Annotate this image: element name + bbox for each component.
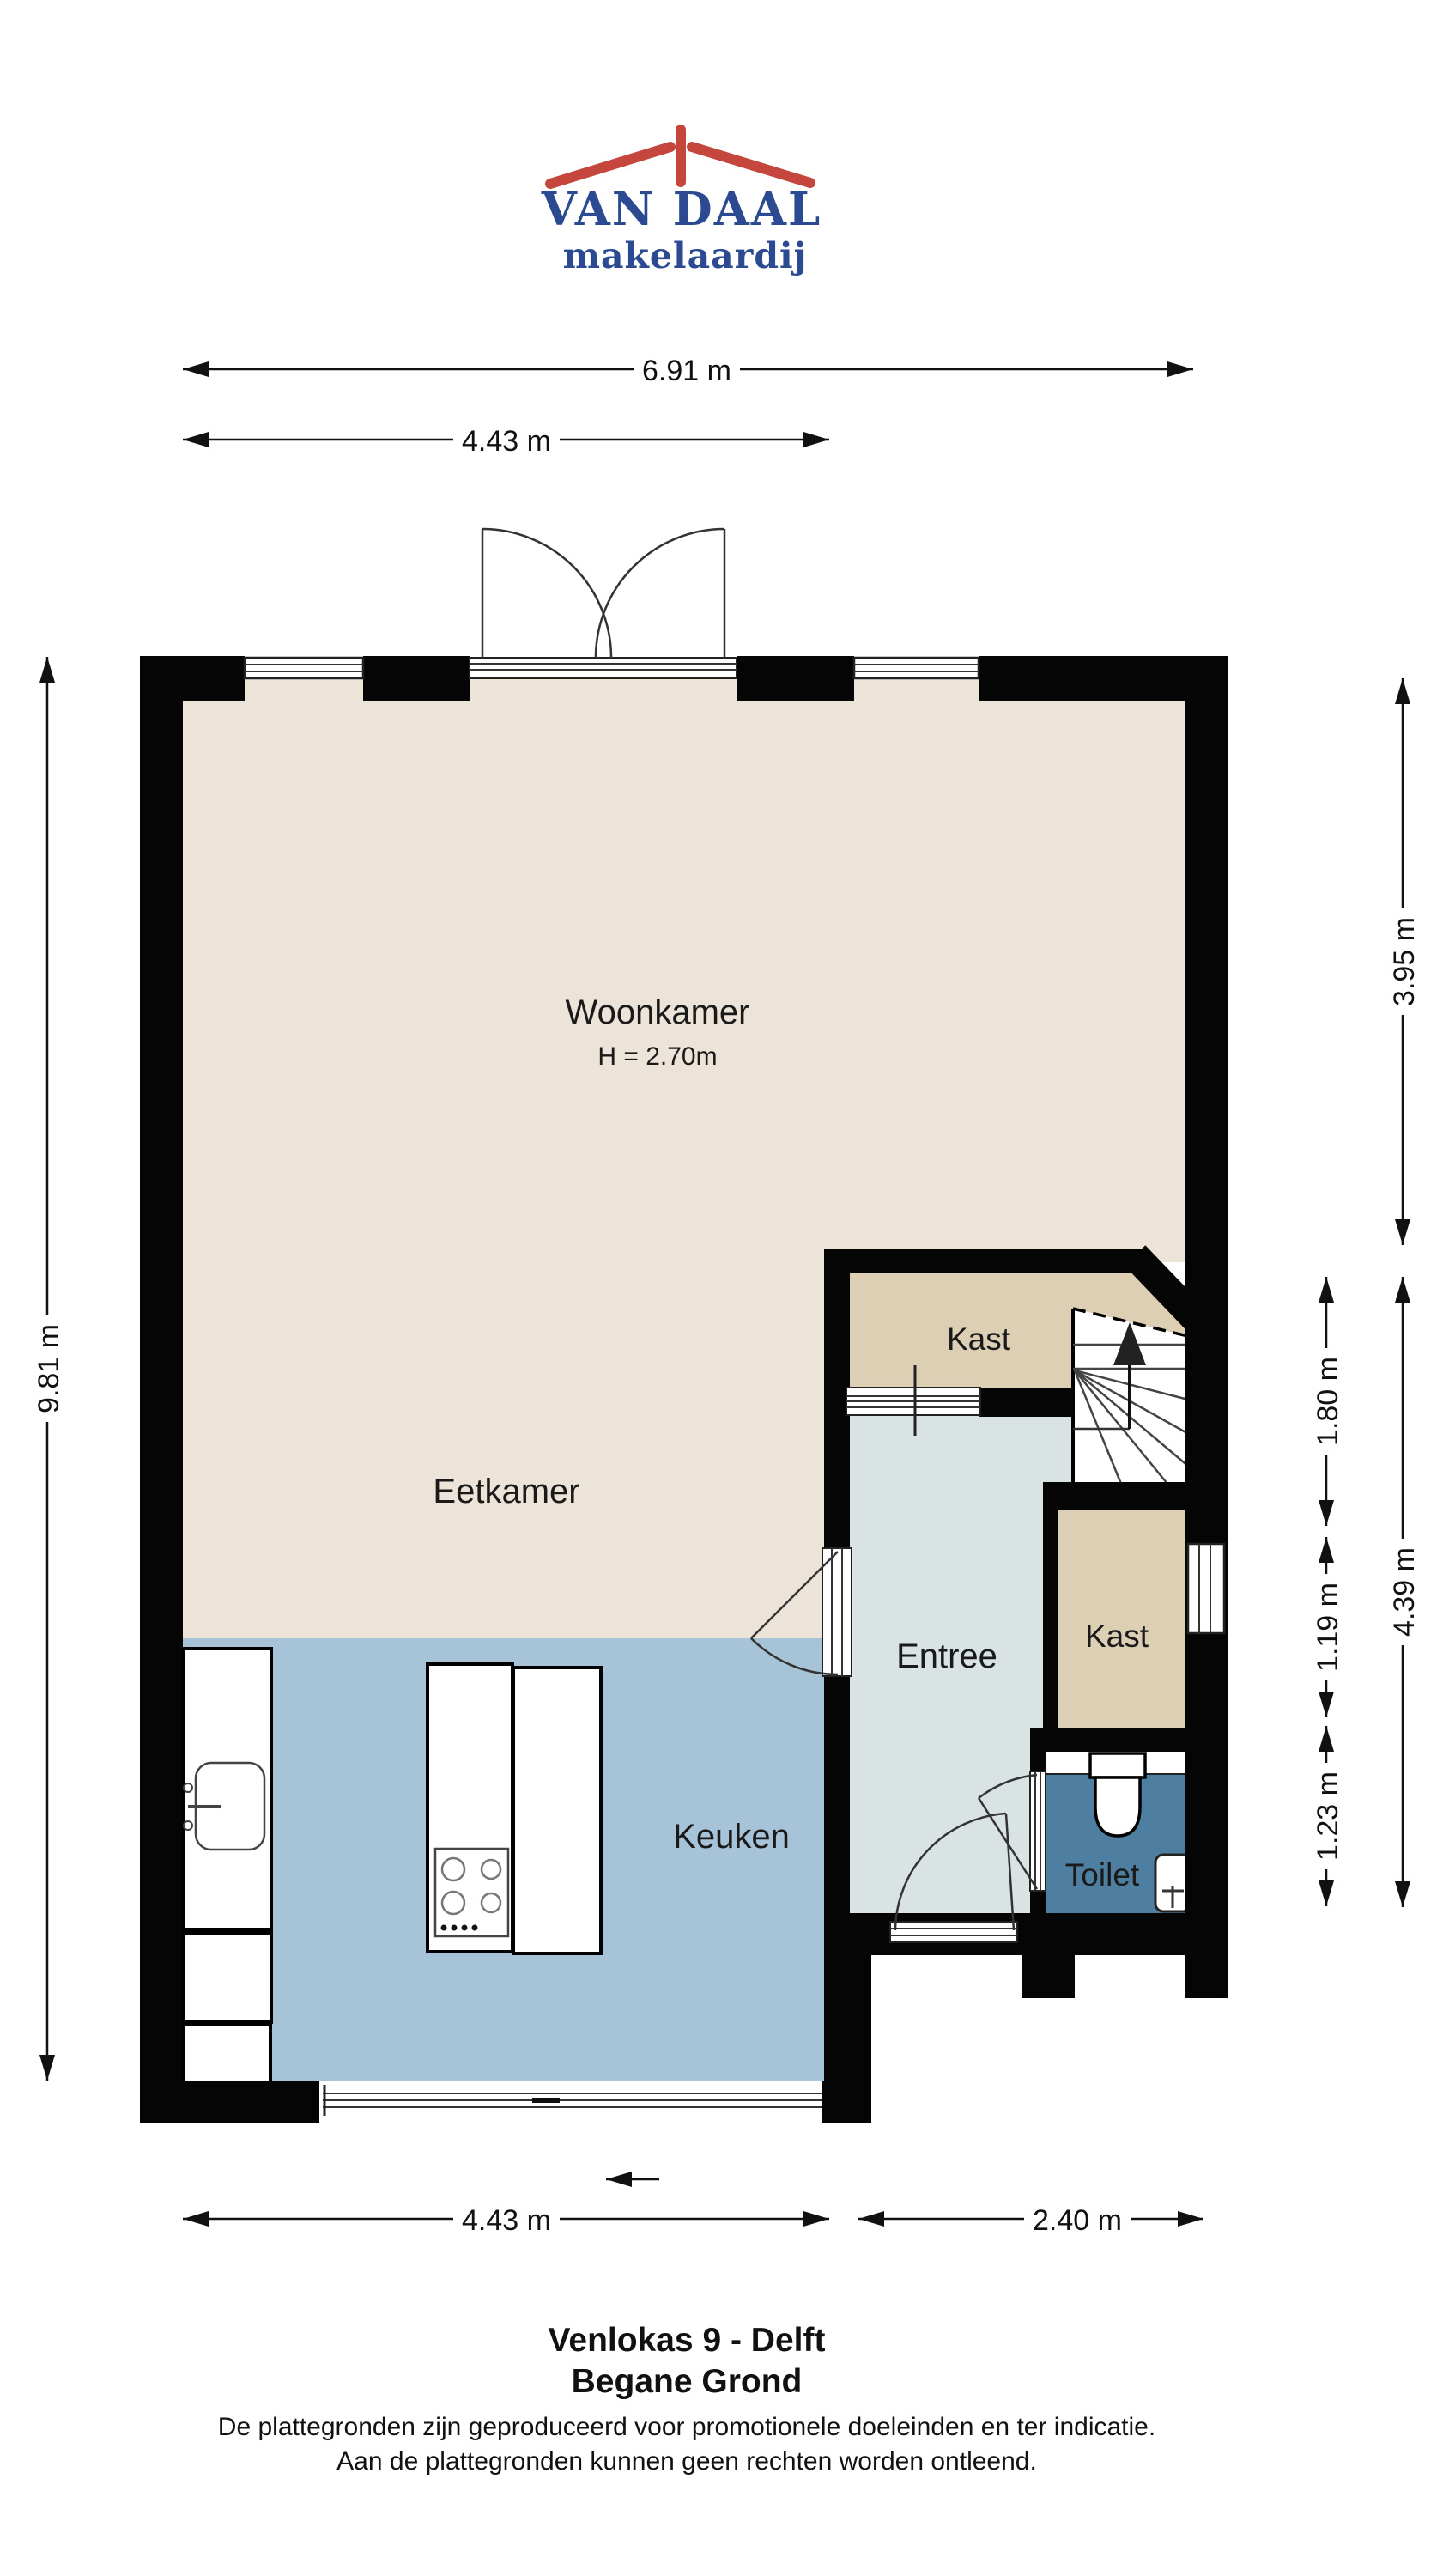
- sliding-door-keuken: [319, 2081, 822, 2179]
- svg-text:3.95 m: 3.95 m: [1388, 917, 1421, 1006]
- double-door-top: [470, 529, 737, 678]
- agency-logo: VAN DAAL makelaardij: [541, 130, 822, 276]
- svg-text:1.19 m: 1.19 m: [1312, 1583, 1344, 1672]
- svg-text:9.81 m: 9.81 m: [33, 1324, 65, 1413]
- plan-subtitle: Begane Grond: [572, 2363, 803, 2400]
- counter-unit-mid: [183, 1933, 271, 2022]
- floorplan-page: VAN DAAL makelaardij: [0, 0, 1449, 2576]
- dim-bottom-left: 4.43 m: [183, 2200, 829, 2238]
- disclaimer-line2: Aan de plattegronden kunnen geen rechten…: [336, 2447, 1037, 2476]
- dim-right-inner-bottom: 1.23 m: [1307, 1726, 1345, 1906]
- dim-left-total: 9.81 m: [28, 657, 66, 2081]
- dim-right-inner-top: 1.80 m: [1307, 1277, 1345, 1526]
- svg-text:4.39 m: 4.39 m: [1388, 1547, 1421, 1637]
- label-eetkamer: Eetkamer: [433, 1473, 579, 1510]
- label-entree: Entree: [896, 1637, 997, 1675]
- island-unit-right: [513, 1668, 601, 1953]
- plan-title: Venlokas 9 - Delft: [549, 2322, 826, 2359]
- label-toilet: Toilet: [1065, 1857, 1140, 1893]
- window-right-wall: [1188, 1544, 1224, 1633]
- logo-tagline: makelaardij: [563, 235, 808, 276]
- svg-text:4.43 m: 4.43 m: [462, 2204, 551, 2237]
- label-kast-onder: Kast: [1085, 1619, 1149, 1654]
- dim-right-lower: 4.39 m: [1384, 1277, 1422, 1907]
- toilet-icon: [1090, 1753, 1145, 1836]
- label-kast-boven: Kast: [947, 1321, 1011, 1357]
- label-woonkamer: Woonkamer: [566, 993, 750, 1031]
- staircase: [1073, 1309, 1195, 1484]
- svg-text:1.23 m: 1.23 m: [1312, 1771, 1344, 1861]
- cooktop-icon: [435, 1849, 508, 1936]
- floor-fills: [163, 674, 1206, 2093]
- counter-unit-low: [183, 2025, 270, 2082]
- footer: Venlokas 9 - Delft Begane Grond De platt…: [218, 2322, 1155, 2476]
- label-ceiling-height: H = 2.70m: [597, 1042, 717, 1071]
- dim-bottom-right: 2.40 m: [858, 2200, 1203, 2238]
- woonkamer-floor: [163, 674, 1206, 1262]
- disclaimer-line1: De plattegronden zijn geproduceerd voor …: [218, 2413, 1155, 2441]
- dim-right-upper: 3.95 m: [1384, 678, 1422, 1245]
- window-top-left: [245, 658, 363, 678]
- svg-text:1.80 m: 1.80 m: [1312, 1357, 1344, 1446]
- logo-name: VAN DAAL: [541, 183, 822, 236]
- dim-top-left: 4.43 m: [183, 421, 829, 459]
- svg-text:6.91 m: 6.91 m: [642, 355, 731, 387]
- roof-icon: [550, 130, 810, 184]
- svg-text:4.43 m: 4.43 m: [462, 425, 551, 458]
- eetkamer-floor: [163, 1249, 841, 1640]
- dim-right-inner-mid: 1.19 m: [1307, 1537, 1345, 1717]
- svg-text:2.40 m: 2.40 m: [1033, 2204, 1122, 2237]
- window-top-right: [854, 658, 979, 678]
- dim-top-total: 6.91 m: [183, 350, 1193, 388]
- label-keuken: Keuken: [673, 1818, 790, 1856]
